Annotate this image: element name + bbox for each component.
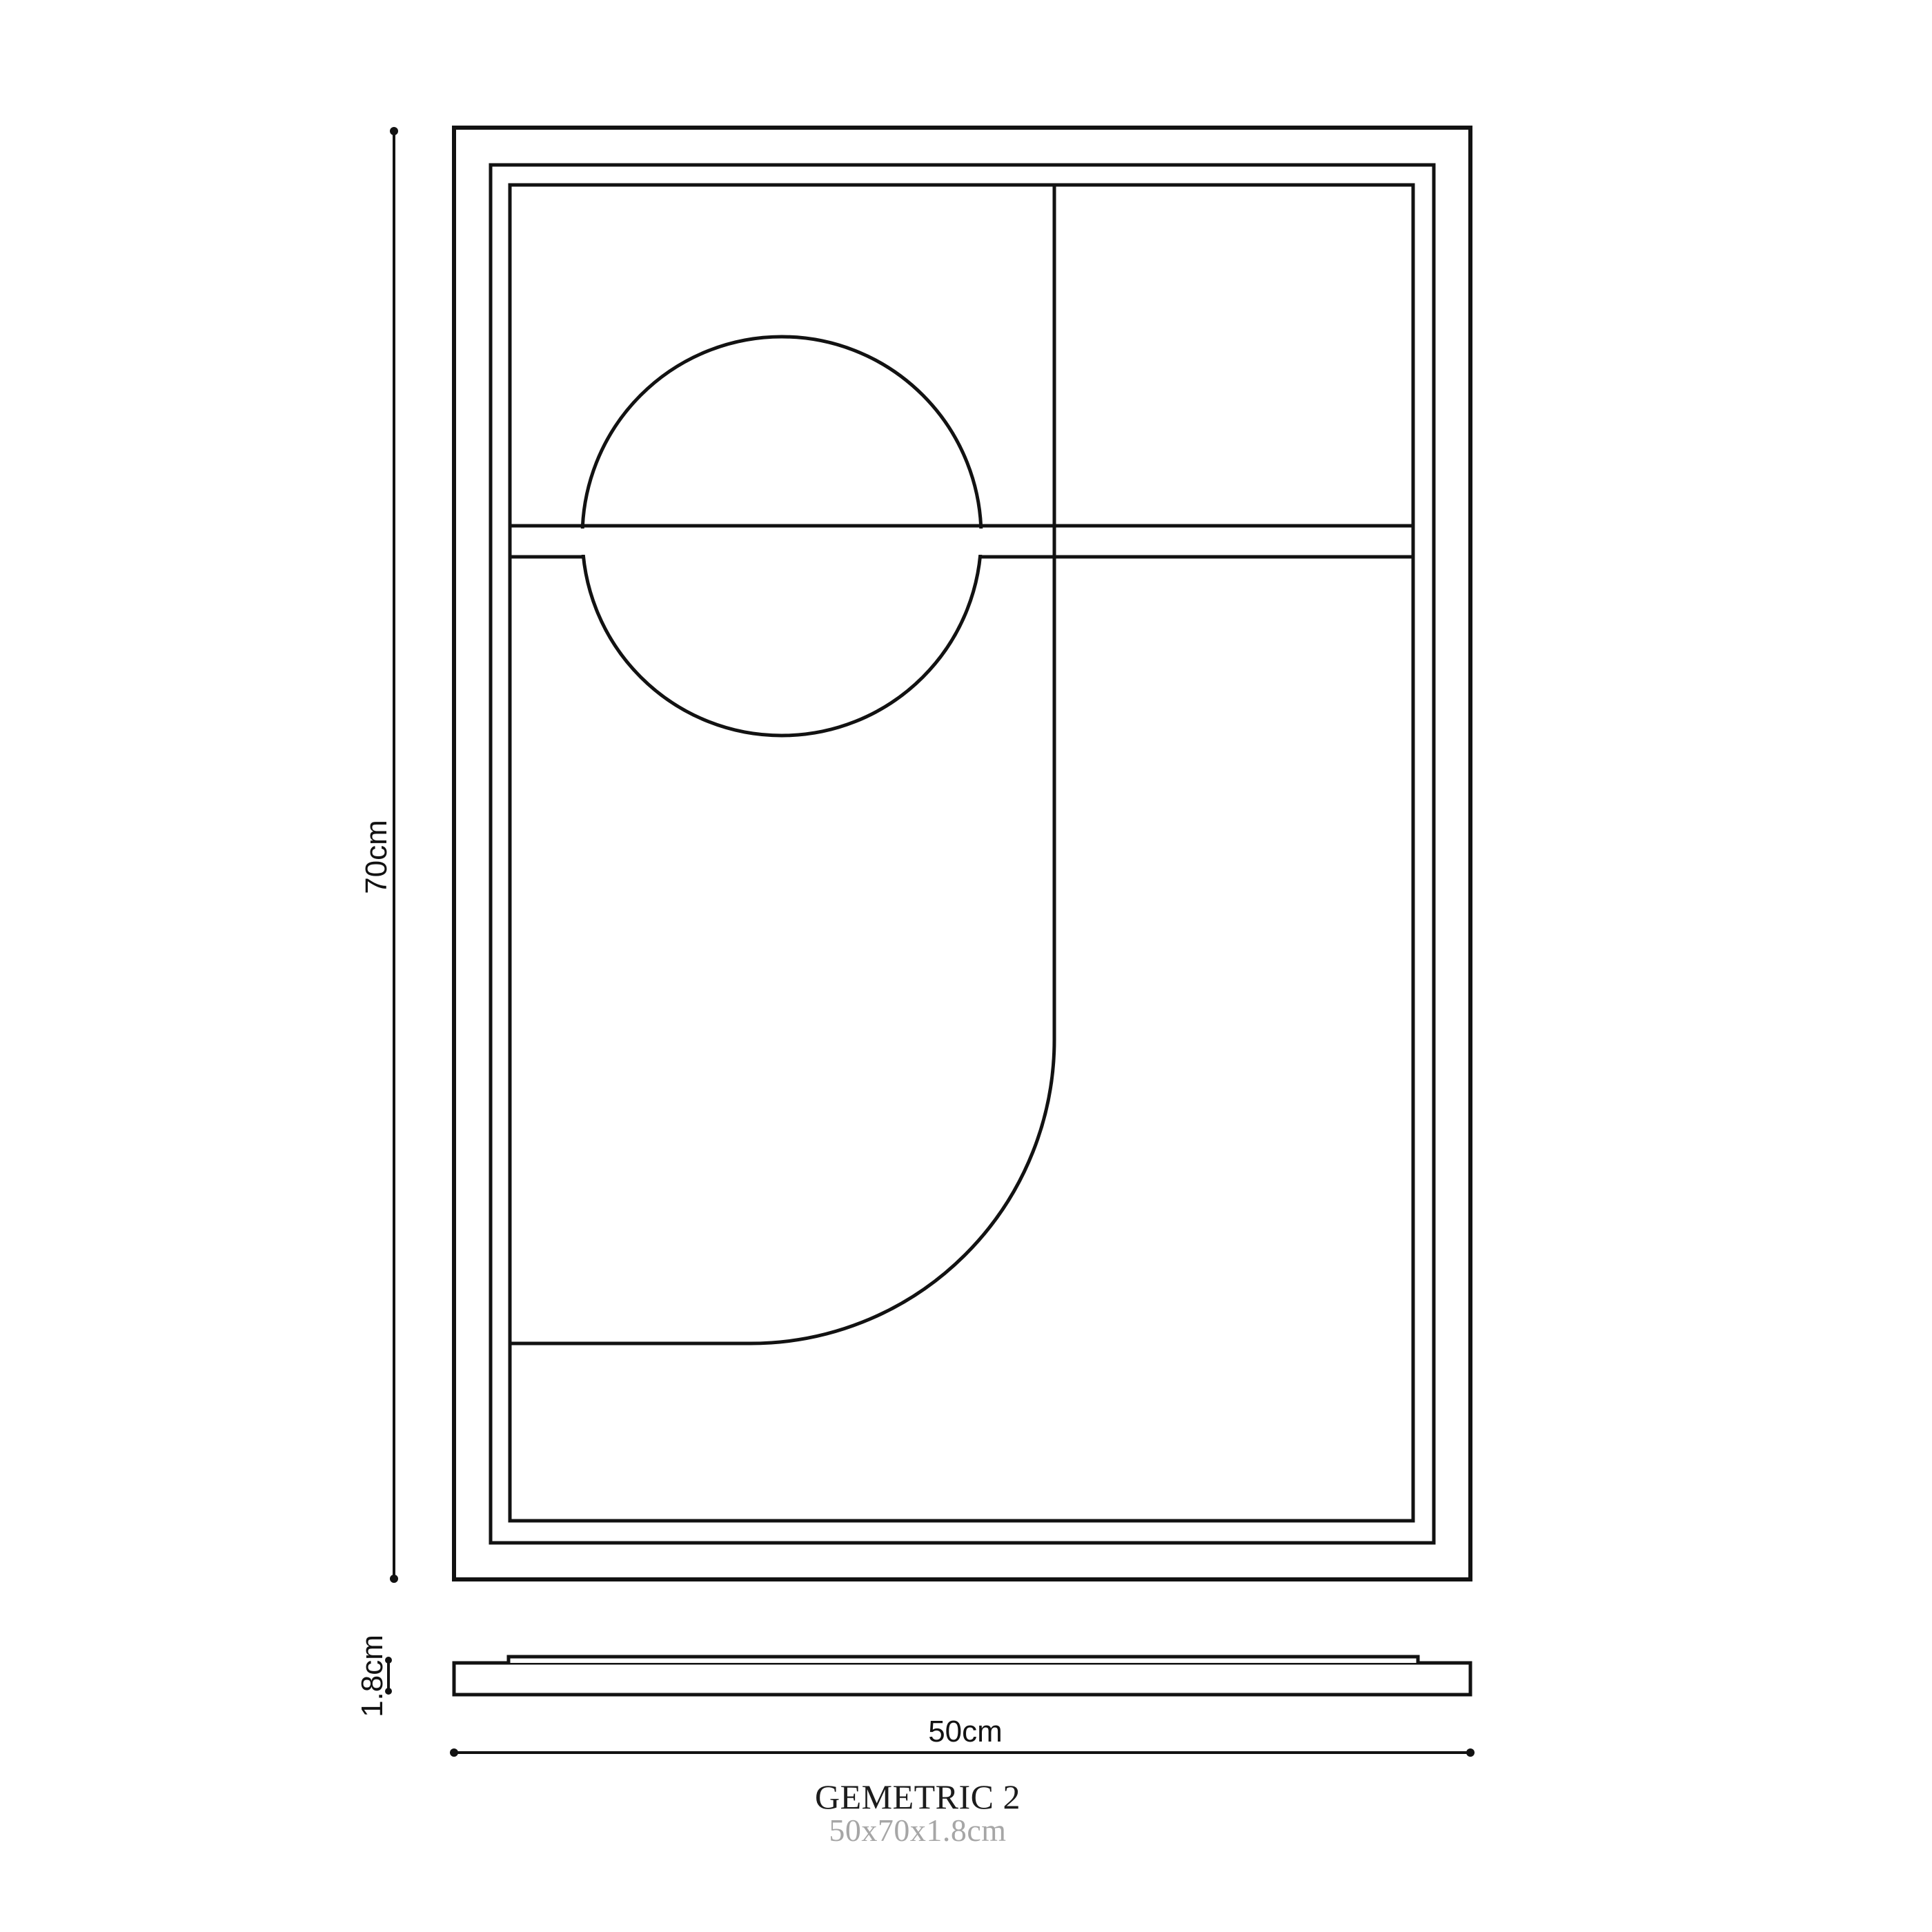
j-curve-motif <box>510 186 1054 1343</box>
front-middle-frame <box>491 165 1434 1543</box>
side-view <box>454 1657 1470 1695</box>
product-dimensions-subtitle: 50x70x1.8cm <box>829 1813 1006 1848</box>
dimension-end-dots <box>385 127 1475 1757</box>
width-dim-dot-left <box>450 1748 458 1757</box>
side-profile-body <box>454 1663 1470 1695</box>
width-dim-dot-right <box>1466 1748 1475 1757</box>
front-inner-frame <box>510 185 1413 1521</box>
height-dim-dot-top <box>390 127 398 135</box>
front-outer-frame <box>454 128 1470 1579</box>
front-view <box>454 128 1470 1579</box>
side-profile-lip <box>509 1657 1418 1663</box>
band-strip-mask <box>514 529 1408 555</box>
thickness-dimension-label: 1.8cm <box>355 1635 389 1717</box>
height-dim-dot-bottom <box>390 1575 398 1583</box>
technical-drawing: 70cm 1.8cm 50cm GEMETRIC 2 50x70x1.8cm <box>0 0 1932 1932</box>
dimension-sheet: 70cm 1.8cm 50cm GEMETRIC 2 50x70x1.8cm <box>0 0 1932 1932</box>
product-title: GEMETRIC 2 <box>815 1777 1021 1816</box>
dimension-lines <box>388 131 1470 1753</box>
height-dimension-label: 70cm <box>359 820 393 894</box>
width-dimension-label: 50cm <box>928 1715 1003 1748</box>
